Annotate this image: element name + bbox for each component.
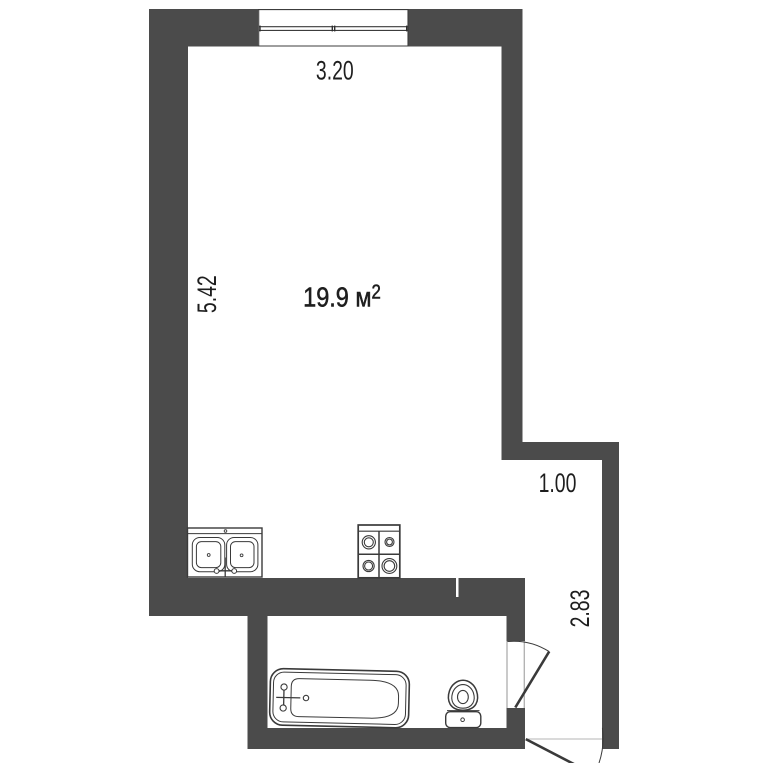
svg-text:5.42: 5.42 (192, 275, 222, 313)
svg-text:2.83: 2.83 (565, 590, 595, 628)
svg-text:3.20: 3.20 (316, 55, 354, 85)
svg-text:1.00: 1.00 (539, 468, 577, 498)
svg-text:19.9 м2: 19.9 м2 (303, 280, 381, 313)
